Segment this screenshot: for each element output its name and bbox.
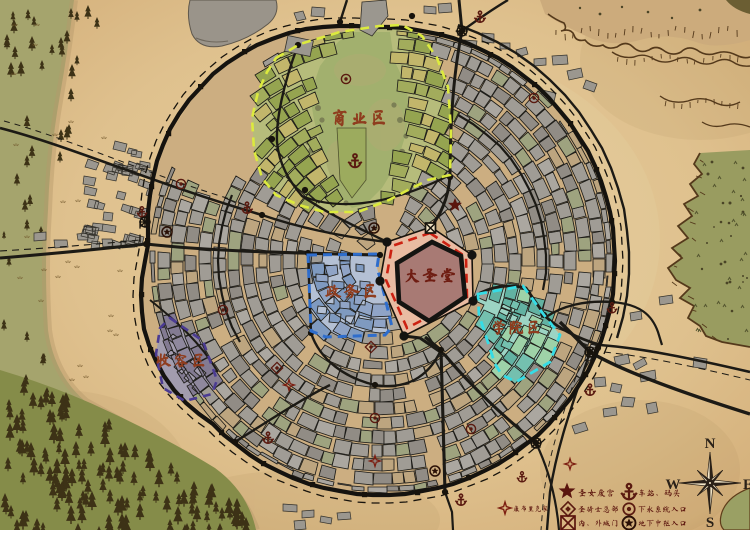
- svg-text:N: N: [705, 436, 716, 452]
- svg-text:S: S: [706, 515, 714, 530]
- svg-text:W: W: [666, 477, 681, 493]
- svg-text:E: E: [743, 477, 750, 493]
